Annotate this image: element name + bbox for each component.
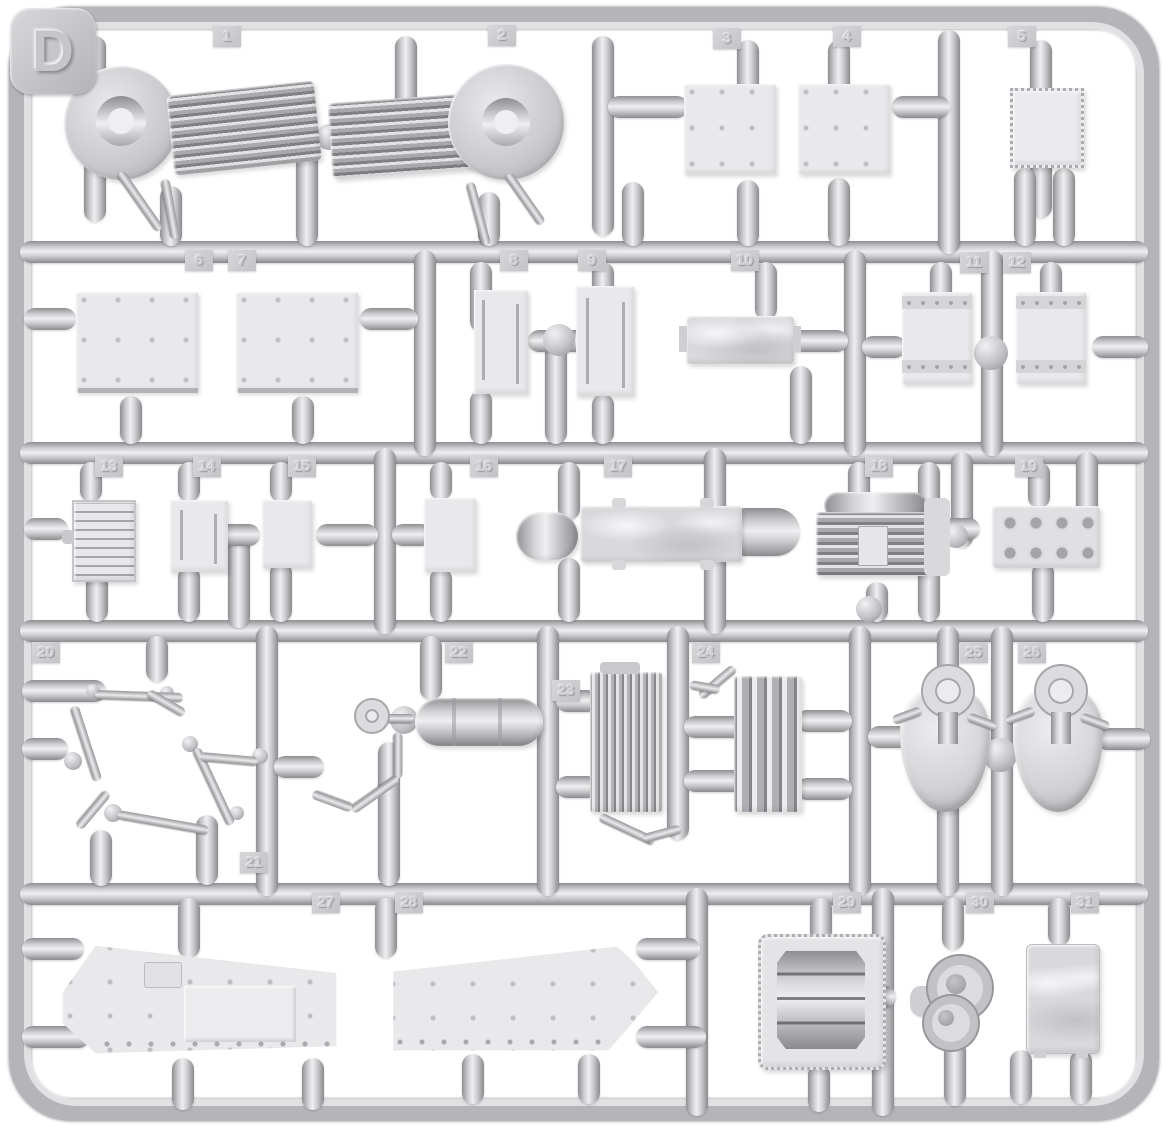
runner-segment bbox=[20, 442, 1148, 464]
sprue-letter-tab: D bbox=[10, 8, 96, 94]
connector-capsule bbox=[22, 738, 68, 760]
part-number-tag-30: 30 bbox=[966, 892, 994, 913]
part-9-slot bbox=[622, 302, 625, 388]
part-number-tag-5: 5 bbox=[1008, 26, 1036, 47]
connector-capsule bbox=[360, 308, 418, 330]
runner-segment bbox=[414, 250, 436, 456]
part-29-oil-pan bbox=[758, 934, 886, 1070]
part-number-tag-28: 28 bbox=[395, 892, 423, 913]
part-30-hole bbox=[946, 974, 966, 994]
sprue-stub bbox=[1053, 168, 1075, 246]
part-number-tag-16: 16 bbox=[470, 456, 498, 477]
sprue-stub bbox=[1048, 898, 1070, 946]
sprue-stub bbox=[808, 1064, 830, 1112]
runner-segment bbox=[374, 448, 396, 634]
part-30-pump-housing bbox=[914, 948, 996, 1048]
connector-capsule bbox=[274, 756, 324, 778]
sprue-stub bbox=[558, 462, 580, 520]
sprue-stub bbox=[120, 396, 142, 444]
part-12-rivet-band bbox=[1016, 360, 1086, 373]
part-number-tag-8: 8 bbox=[500, 250, 528, 271]
part-7-edge bbox=[238, 388, 358, 393]
sprue-stub bbox=[420, 636, 442, 700]
part-12-rivet-band bbox=[1016, 296, 1086, 309]
part-number-tag-21: 21 bbox=[240, 852, 268, 873]
connector-capsule bbox=[636, 938, 700, 960]
connector-capsule bbox=[316, 524, 378, 546]
part-22-crank-handle-tank bbox=[415, 698, 543, 746]
part-22-wheel bbox=[356, 700, 388, 732]
part-22-crank bbox=[394, 733, 403, 779]
part-17-lug bbox=[612, 560, 626, 570]
sprue-stub bbox=[430, 462, 452, 500]
part-22-band bbox=[498, 698, 502, 746]
sprue-stub bbox=[470, 390, 492, 444]
part-6-riveted-panel bbox=[76, 292, 198, 392]
part-1-hub-cap bbox=[108, 108, 134, 134]
part-11-rivet-band bbox=[902, 360, 972, 373]
part-14-slot bbox=[180, 510, 183, 560]
part-13-ribbed-radiator-core bbox=[72, 500, 136, 582]
part-9-slotted-side-panel bbox=[576, 286, 634, 396]
part-number-tag-23: 23 bbox=[552, 680, 580, 701]
part-16-small-plate bbox=[424, 498, 476, 572]
part-number-tag-3: 3 bbox=[713, 28, 741, 49]
part-number-tag-26: 26 bbox=[1018, 642, 1046, 663]
part-17-lug bbox=[612, 498, 626, 508]
part-number-tag-4: 4 bbox=[833, 26, 861, 47]
sprue-stub bbox=[737, 180, 759, 246]
runner-segment bbox=[686, 888, 708, 1116]
connector-capsule bbox=[892, 96, 950, 118]
part-27-rivet-row bbox=[102, 1040, 332, 1048]
part-number-tag-25: 25 bbox=[960, 642, 988, 663]
part-number-tag-2: 2 bbox=[488, 25, 516, 46]
part-17-lug bbox=[700, 560, 714, 570]
part-11-rivet-band bbox=[902, 296, 972, 309]
part-19-drilled-valve-plate bbox=[992, 506, 1100, 568]
part-number-tag-15: 15 bbox=[288, 456, 316, 477]
part-5-riveted-hatch bbox=[1010, 88, 1084, 168]
junction-ball bbox=[543, 324, 575, 356]
part-29-pan-body bbox=[777, 951, 865, 1049]
part-number-tag-9: 9 bbox=[578, 250, 606, 271]
sprue-stub bbox=[296, 150, 318, 246]
sprue-stub bbox=[1014, 168, 1036, 246]
connector-capsule bbox=[1096, 728, 1150, 750]
sprue-stub bbox=[90, 830, 112, 886]
sprue-stub bbox=[1010, 1050, 1032, 1104]
connector-capsule bbox=[796, 778, 852, 800]
part-10-tab bbox=[793, 326, 801, 352]
part-18-plate bbox=[858, 526, 888, 566]
part-17-tank-end-cap bbox=[516, 512, 578, 560]
sprue-stub bbox=[622, 182, 644, 246]
part-number-tag-1: 1 bbox=[213, 26, 241, 47]
part-number-tag-6: 6 bbox=[185, 250, 213, 271]
part-6-edge bbox=[78, 388, 198, 393]
part-20-joint bbox=[64, 752, 82, 770]
sprue-stub bbox=[302, 1058, 324, 1110]
part-number-tag-18: 18 bbox=[865, 456, 893, 477]
part-number-tag-24: 24 bbox=[692, 642, 720, 663]
runner-segment bbox=[849, 626, 871, 896]
runner-segment bbox=[844, 250, 866, 456]
sprue-stub bbox=[430, 568, 452, 622]
sprue-stub bbox=[942, 898, 964, 950]
part-number-tag-27: 27 bbox=[312, 892, 340, 913]
part-23-finned-oil-cooler bbox=[590, 672, 662, 812]
part-22-stem bbox=[384, 714, 414, 723]
part-2-hub-cap bbox=[494, 110, 518, 134]
sprue-stub bbox=[828, 178, 850, 246]
part-number-tag-20: 20 bbox=[32, 642, 60, 663]
part-22-band bbox=[452, 698, 456, 746]
part-number-tag-14: 14 bbox=[193, 456, 221, 477]
part-18-flange bbox=[924, 498, 950, 576]
part-4-riveted-plate bbox=[798, 84, 890, 174]
part-31-tab bbox=[1076, 1050, 1088, 1058]
runner-segment bbox=[20, 620, 1148, 642]
part-23-fitting bbox=[600, 662, 640, 674]
connector-capsule bbox=[608, 96, 688, 118]
sprue-stub bbox=[592, 36, 614, 236]
part-number-tag-13: 13 bbox=[95, 456, 123, 477]
part-14-slotted-plate bbox=[170, 500, 228, 572]
part-17-cylindrical-tank bbox=[580, 506, 742, 562]
sprue-stub bbox=[1070, 1050, 1092, 1104]
connector-capsule bbox=[1092, 336, 1148, 358]
part-number-tag-7: 7 bbox=[228, 250, 256, 271]
part-28-rivet-row bbox=[395, 1038, 610, 1046]
part-number-tag-29: 29 bbox=[833, 892, 861, 913]
sprue-stub bbox=[146, 636, 168, 682]
part-15-small-plate bbox=[262, 500, 312, 568]
part-10-stowage-bin-lid bbox=[686, 316, 794, 364]
runner-segment bbox=[537, 626, 559, 896]
sprue-stub bbox=[592, 394, 614, 444]
connector-capsule bbox=[636, 1026, 706, 1048]
part-13-knob bbox=[62, 530, 74, 544]
part-number-tag-10: 10 bbox=[731, 250, 759, 271]
part-31-tab bbox=[1034, 1050, 1046, 1058]
sprue-stub bbox=[375, 898, 397, 958]
part-26-yoke bbox=[1051, 712, 1071, 744]
sprue-stub bbox=[178, 898, 200, 958]
sprue-stub bbox=[944, 1040, 966, 1106]
part-25-yoke bbox=[938, 712, 958, 744]
junction-ball bbox=[974, 336, 1008, 370]
part-17-lug bbox=[700, 498, 714, 508]
part-14-slot bbox=[214, 514, 217, 564]
part-27-small-panel bbox=[144, 962, 182, 988]
sprue-stub bbox=[790, 366, 812, 444]
sprue-stub bbox=[558, 558, 580, 622]
part-number-tag-12: 12 bbox=[1003, 252, 1031, 273]
part-number-tag-17: 17 bbox=[604, 456, 632, 477]
sprue-stub bbox=[1032, 562, 1054, 622]
part-number-tag-19: 19 bbox=[1015, 456, 1043, 477]
sprue-stub bbox=[292, 396, 314, 444]
sprue-photo: D bbox=[0, 0, 1168, 1132]
part-9-slot bbox=[586, 298, 589, 384]
part-31-stowage-box bbox=[1026, 944, 1100, 1054]
runner-segment bbox=[938, 30, 960, 254]
part-8-slot bbox=[482, 300, 485, 380]
sprue-stub bbox=[178, 566, 200, 622]
sprue-stub bbox=[578, 1054, 600, 1104]
sprue-stub bbox=[270, 562, 292, 622]
part-25-ring bbox=[923, 666, 973, 716]
connector-capsule bbox=[22, 938, 84, 960]
part-30-hole bbox=[938, 1010, 954, 1026]
connector-capsule bbox=[862, 336, 906, 358]
part-1-louvres bbox=[166, 80, 322, 175]
part-24-finned-oil-cooler bbox=[734, 676, 802, 812]
connector-capsule bbox=[24, 308, 76, 330]
part-number-tag-22: 22 bbox=[445, 642, 473, 663]
connector-capsule bbox=[796, 710, 852, 732]
part-number-tag-31: 31 bbox=[1071, 892, 1099, 913]
part-10-tab bbox=[679, 326, 687, 352]
part-27-raised-box bbox=[184, 986, 296, 1042]
part-3-riveted-plate bbox=[684, 84, 776, 174]
sprue-stub bbox=[462, 1054, 484, 1104]
part-7-riveted-panel bbox=[236, 292, 358, 392]
junction-ball bbox=[856, 596, 882, 622]
part-8-slot bbox=[516, 304, 519, 384]
sprue-stub bbox=[172, 1058, 194, 1110]
part-26-ring bbox=[1036, 666, 1086, 716]
part-number-tag-11: 11 bbox=[960, 252, 988, 273]
